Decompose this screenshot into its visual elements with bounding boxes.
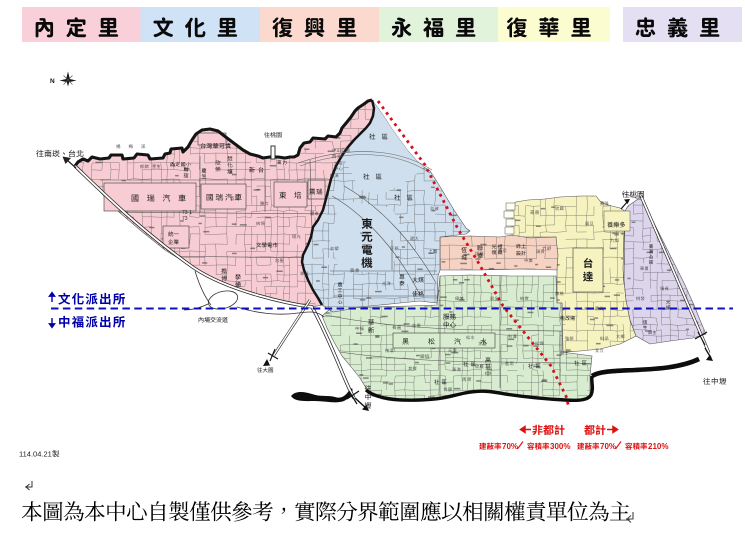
svg-text:N: N — [50, 78, 55, 85]
svg-text:114.04.21: 114.04.21 — [19, 450, 52, 459]
svg-text:70%: 70% — [502, 442, 518, 451]
svg-text:70%: 70% — [600, 442, 616, 451]
svg-text:73: 73 — [182, 216, 188, 222]
svg-text:300%: 300% — [550, 442, 570, 451]
svg-text:210%: 210% — [648, 442, 668, 451]
